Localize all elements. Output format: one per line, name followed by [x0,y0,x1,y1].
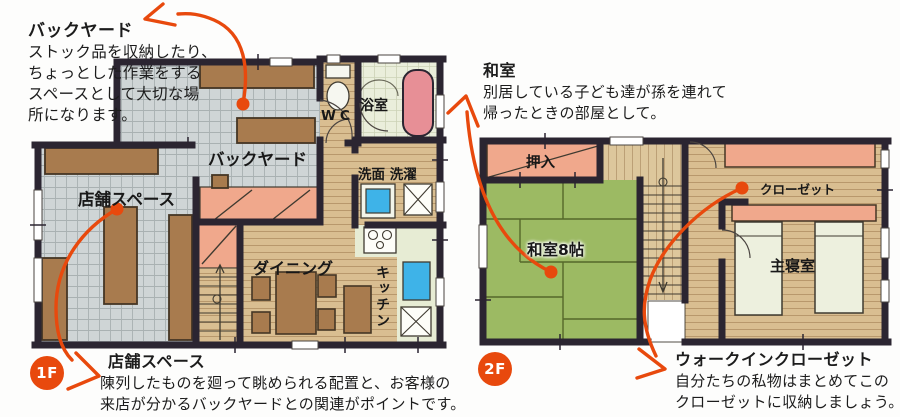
arrowhead [637,349,665,378]
kitchen-sink [403,262,430,300]
room-label-bath: 浴室 [360,95,388,115]
shop-note-title: 店舗スペース [108,351,466,373]
note-line: 自分たちの私物はまとめてこの [675,371,900,392]
note-line: 来店が分かるバックヤードとの関連がポイントです。 [100,394,466,415]
hall-floor [685,141,722,342]
note-line: 帰ったときの部屋として。 [483,103,727,124]
washitsu-note-title: 和室 [483,60,727,82]
backyard-note: バックヤード ストック品を収納したり、 ちょっとした作業をする スペースとして大… [28,20,217,126]
backyard-note-title: バックヤード [28,20,217,42]
leader-dot [736,182,749,195]
arrowhead [448,96,478,126]
room-label-bedroom: 主寝室 [770,255,815,276]
room-label-shop: 店舗スペース [78,186,175,210]
wic-shelf [725,143,875,167]
stairwell-void [648,301,685,342]
room-label-washitsu: 和室8帖 [527,238,584,260]
leader-dot [545,266,558,279]
toilet [326,65,350,110]
stove [364,227,396,253]
washitsu-note: 和室 別居している子ども達が孫を連れて 帰ったときの部屋として。 [483,60,727,124]
laundry-sink [366,189,390,213]
headboard-shelf [732,205,876,221]
note-line: クローゼットに収納しましょう。 [675,392,900,413]
room-label-closet: クローゼット [760,179,835,198]
room-label-oshiire: 押入 [526,151,555,172]
note-line: ストック品を収納したり、 [28,42,217,63]
note-line: 陳列したものを廻って眺められる配置と、お客様の [100,373,466,394]
note-line: 所になります。 [28,105,217,126]
room-label-dining: ダイニング [253,255,333,279]
note-line: ちょっとした作業をする [28,63,217,84]
floor2-badge: 2F [478,352,512,386]
leader-dot [237,98,250,111]
wic-note: ウォークインクローゼット 自分たちの私物はまとめてこの クローゼットに収納しまし… [675,349,900,413]
bathtub [403,70,433,136]
wic-note-title: ウォークインクローゼット [675,349,900,371]
note-line: スペースとして大切な場 [28,84,217,105]
floor1-badge: 1F [30,356,64,390]
room-label-kitchen: キッチン [372,265,392,329]
shop-note: 店舗スペース 陳列したものを廻って眺められる配置と、お客様の 来店が分かるバック… [100,351,466,415]
stair-landing-floor [600,141,685,180]
room-label-laundry: 洗面 洗濯 [358,163,417,183]
room-label-backyard: バックヤード [208,146,307,170]
note-line: 別居している子ども達が孫を連れて [483,82,727,103]
room-label-wc: WC [321,108,354,124]
